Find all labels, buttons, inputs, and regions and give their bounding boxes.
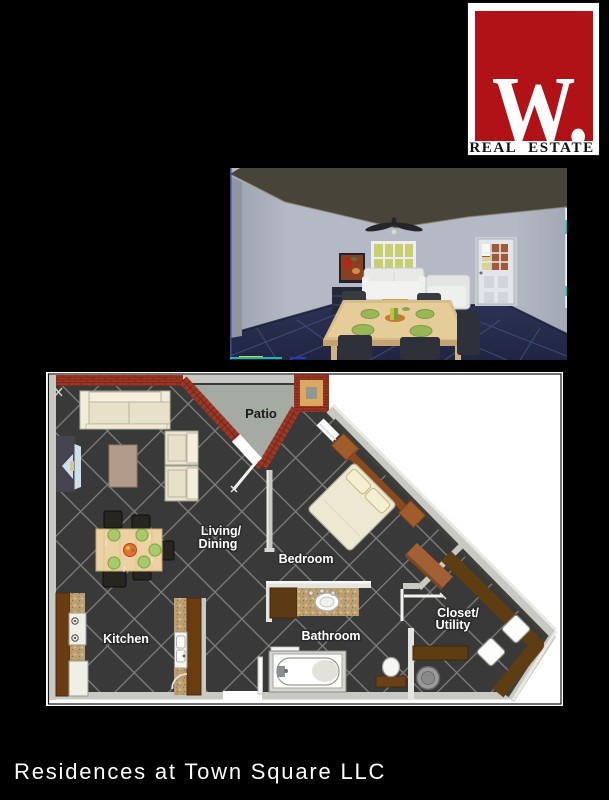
svg-text:Bathroom: Bathroom bbox=[301, 629, 360, 643]
svg-text:Bedroom: Bedroom bbox=[279, 552, 334, 566]
svg-text:Patio: Patio bbox=[245, 406, 277, 421]
svg-text:Dining: Dining bbox=[199, 537, 238, 551]
svg-text:Utility: Utility bbox=[436, 618, 471, 632]
svg-text:Living/: Living/ bbox=[201, 524, 242, 538]
svg-text:Kitchen: Kitchen bbox=[103, 632, 149, 646]
